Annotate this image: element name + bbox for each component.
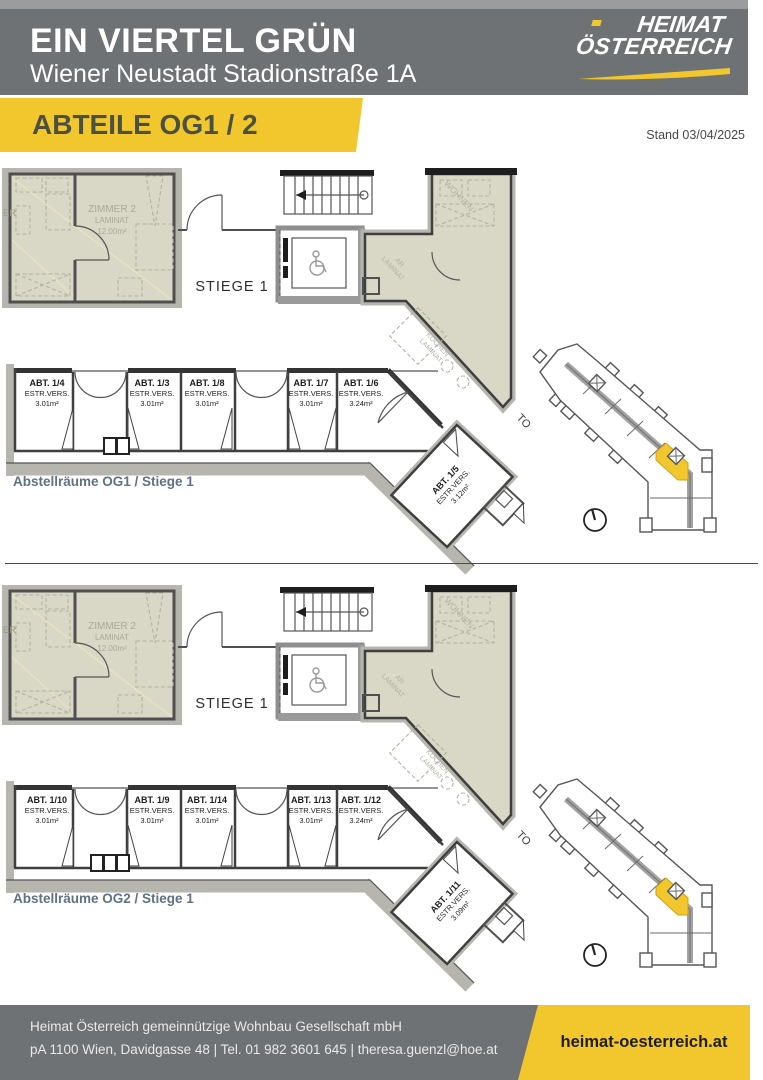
svg-text:ABT. 1/13: ABT. 1/13 — [291, 795, 331, 805]
room-name: ZIMMER 2 — [88, 621, 136, 632]
cutoff-unit-label: TO — [514, 829, 533, 849]
north-indicator-icon — [584, 509, 606, 531]
revision-date: Stand 03/04/2025 — [646, 128, 745, 142]
room-partial-label: ER — [3, 625, 16, 636]
project-address: Wiener Neustadt Stadionstraße 1A — [30, 60, 416, 89]
svg-text:3.01m²: 3.01m² — [299, 399, 323, 408]
svg-text:3.01m²: 3.01m² — [140, 816, 164, 825]
corridor-door-arc-2 — [236, 372, 287, 398]
plan-caption: Abstellräume OG1 / Stiege 1 — [13, 474, 194, 489]
svg-text:ESTR.VERS.: ESTR.VERS. — [339, 389, 384, 398]
compartment-1-label: ABT. 1/10 ESTR.VERS. 3.01m² — [25, 795, 70, 825]
svg-text:ABT. 1/4: ABT. 1/4 — [29, 378, 64, 388]
stair-direction-arrow-icon — [296, 190, 306, 200]
room-floor: LAMINAT — [95, 633, 129, 642]
hallway: STIEGE 1 — [178, 612, 278, 712]
footer-website: heimat-oesterreich.at — [538, 1005, 750, 1080]
section-banner: ABTEILE OG1 / 2 — [0, 98, 363, 152]
compartment-4-label: ABT. 1/7 ESTR.VERS. 3.01m² — [289, 378, 334, 408]
svg-text:3.01m²: 3.01m² — [35, 399, 59, 408]
svg-text:3.01m²: 3.01m² — [140, 399, 164, 408]
section-title: ABTEILE OG1 / 2 — [32, 109, 258, 141]
section-divider — [5, 563, 758, 564]
room-floor: LAMINAT — [95, 216, 129, 225]
footer-website-box: heimat-oesterreich.at — [500, 1005, 750, 1080]
svg-text:3.24m²: 3.24m² — [349, 399, 373, 408]
floorplan-og2: ZIMMER 2 LAMINAT 12.00m² ER STIEGE 1 — [0, 585, 763, 1000]
header-bar: EIN VIERTEL GRÜN Wiener Neustadt Stadion… — [0, 0, 748, 95]
staircase — [280, 170, 374, 214]
diagonal-unit: ABT. 1/5 ESTR.VERS. 3.12m² TO — [378, 392, 542, 574]
room-area: 12.00m² — [97, 227, 127, 236]
svg-text:3.01m²: 3.01m² — [35, 816, 59, 825]
svg-text:ABT. 1/6: ABT. 1/6 — [343, 378, 378, 388]
floorplan-svg: ZIMMER 2 LAMINAT 12.00m² ER STIEGE 1 — [0, 585, 763, 1000]
svg-text:3.01m²: 3.01m² — [195, 399, 219, 408]
footer-company: Heimat Österreich gemeinnützige Wohnbau … — [30, 1019, 402, 1034]
svg-text:ESTR.VERS.: ESTR.VERS. — [130, 389, 175, 398]
svg-text:ESTR.VERS.: ESTR.VERS. — [25, 806, 70, 815]
storage-row: ABT. 1/4 ESTR.VERS. 3.01m² ABT. 1/3 ESTR… — [6, 364, 474, 570]
svg-text:ESTR.VERS.: ESTR.VERS. — [25, 389, 70, 398]
svg-text:ABT. 1/7: ABT. 1/7 — [293, 378, 328, 388]
elevator — [278, 645, 365, 721]
svg-text:ESTR.VERS.: ESTR.VERS. — [130, 806, 175, 815]
compartment-5-label: ABT. 1/6 ESTR.VERS. 3.24m² — [339, 378, 384, 408]
compartment-4-label: ABT. 1/13 ESTR.VERS. 3.01m² — [289, 795, 334, 825]
compartment-1-label: ABT. 1/4 ESTR.VERS. 3.01m² — [25, 378, 70, 408]
storage-row: ABT. 1/10 ESTR.VERS. 3.01m² ABT. 1/9 EST… — [6, 781, 474, 987]
svg-text:3.01m²: 3.01m² — [299, 816, 323, 825]
hallway: STIEGE 1 — [178, 195, 278, 295]
svg-text:ABT. 1/12: ABT. 1/12 — [341, 795, 381, 805]
floorplan-svg: ZIMMER 2 LAMINAT 12.00m² ER STIEGE 1 — [0, 168, 763, 583]
svg-text:ESTR.VERS.: ESTR.VERS. — [185, 806, 230, 815]
flyer-page: EIN VIERTEL GRÜN Wiener Neustadt Stadion… — [0, 0, 763, 1080]
diagonal-unit: ABT. 1/11 ESTR.VERS. 3.09m² TO — [378, 809, 542, 991]
apartment-room: ZIMMER 2 LAMINAT 12.00m² ER — [2, 585, 182, 725]
svg-text:3.01m²: 3.01m² — [195, 816, 219, 825]
svg-text:ESTR.VERS.: ESTR.VERS. — [339, 806, 384, 815]
meter-box-3 — [91, 855, 103, 871]
stairwell-label: STIEGE 1 — [195, 696, 268, 712]
svg-text:ABT. 1/10: ABT. 1/10 — [27, 795, 67, 805]
apartment-room: ZIMMER 2 LAMINAT 12.00m² ER — [2, 168, 182, 308]
svg-text:ABT. 1/9: ABT. 1/9 — [134, 795, 169, 805]
footer-contact: pA 1100 Wien, Davidgasse 48 | Tel. 01 98… — [30, 1042, 498, 1057]
stair-direction-arrow-icon — [296, 607, 306, 617]
room-name: ZIMMER 2 — [88, 204, 136, 215]
staircase — [280, 587, 374, 631]
svg-text:ABT. 1/14: ABT. 1/14 — [187, 795, 227, 805]
compartment-3-label: ABT. 1/8 ESTR.VERS. 3.01m² — [185, 378, 230, 408]
svg-text:ABT. 1/3: ABT. 1/3 — [134, 378, 169, 388]
corridor-door-arc-1 — [75, 372, 126, 397]
svg-text:3.24m²: 3.24m² — [349, 816, 373, 825]
logo-swoosh-icon — [576, 66, 732, 82]
svg-text:ABT. 1/8: ABT. 1/8 — [189, 378, 224, 388]
location-minimap — [533, 779, 716, 967]
compartment-5-label: ABT. 1/12 ESTR.VERS. 3.24m² — [339, 795, 384, 825]
logo-word-bottom: ÖSTERREICH — [572, 36, 735, 58]
room-partial-label: ER — [3, 208, 16, 219]
plan-caption: Abstellräume OG2 / Stiege 1 — [13, 891, 194, 906]
svg-text:ESTR.VERS.: ESTR.VERS. — [289, 806, 334, 815]
elevator — [278, 228, 365, 304]
svg-text:ESTR.VERS.: ESTR.VERS. — [289, 389, 334, 398]
compartment-3-label: ABT. 1/14 ESTR.VERS. 3.01m² — [185, 795, 230, 825]
location-minimap — [533, 344, 716, 532]
corridor-door-arc-2 — [236, 789, 287, 815]
hallway-door-arc — [187, 195, 222, 230]
cutoff-unit-label: TO — [514, 412, 533, 432]
compartment-2-label: ABT. 1/9 ESTR.VERS. 3.01m² — [130, 795, 175, 825]
compartment-2-label: ABT. 1/3 ESTR.VERS. 3.01m² — [130, 378, 175, 408]
header-top-strip — [0, 0, 748, 9]
svg-text:ESTR.VERS.: ESTR.VERS. — [185, 389, 230, 398]
room-area: 12.00m² — [97, 644, 127, 653]
hallway-door-arc — [187, 612, 222, 647]
project-title: EIN VIERTEL GRÜN — [30, 22, 357, 61]
floorplan-og1: ZIMMER 2 LAMINAT 12.00m² ER STIEGE 1 — [0, 168, 763, 583]
stairwell-label: STIEGE 1 — [195, 279, 268, 295]
heimat-oesterreich-logo: HEIMAT ÖSTERREICH — [574, 14, 734, 84]
north-indicator-icon — [584, 944, 606, 966]
corridor-door-arc-1 — [75, 789, 126, 814]
